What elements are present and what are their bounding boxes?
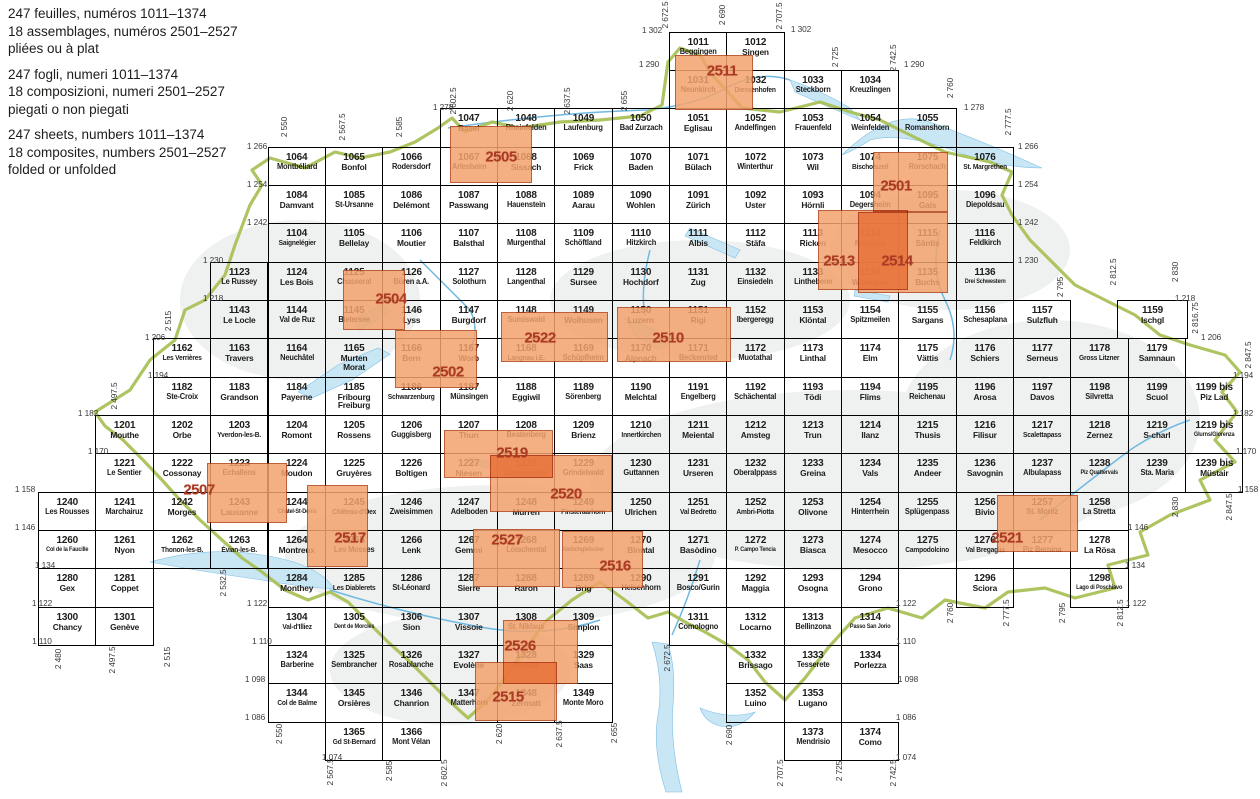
sheet-name: Meiental — [670, 431, 726, 440]
sheet-cell: 1300Chancy — [38, 607, 96, 646]
sheet-name: Gais — [899, 201, 955, 210]
sheet-name: Langnau i.E. — [500, 354, 552, 363]
sheet-name: Filisur — [957, 431, 1013, 440]
sheet-cell: 1274Mesocco — [841, 530, 899, 569]
sheet-number: 1260 — [39, 535, 95, 546]
sheet-cell: 1126Büren a.A. — [382, 262, 440, 301]
sheet-name: Schüpfheim — [556, 354, 610, 363]
sheet-cell: 1162Les Verrières — [153, 338, 211, 377]
sheet-name: Mont Vélan — [384, 738, 438, 747]
sheet-name: Bonfol — [326, 163, 382, 172]
sheet-name: Trun — [785, 431, 841, 440]
sheet-name: Binntal — [613, 546, 669, 555]
sheet-name: Lenk — [383, 546, 439, 555]
sheet-name: Klöntal — [785, 316, 841, 325]
sheet-name: Kreuzlingen — [843, 86, 897, 95]
sheet-name: Linthebene — [786, 278, 840, 287]
sheet-name: Simplon — [555, 623, 611, 632]
sheet-name: Chanrion — [383, 699, 439, 708]
sheet-name: Piz Bernina — [1015, 546, 1069, 555]
sheet-cell: 1311Comologno — [669, 607, 727, 646]
sheet-cell: 1267Gemmi — [440, 530, 498, 569]
sheet-cell: 1352Luino — [726, 683, 784, 722]
sheet-name: Sissach — [498, 163, 554, 172]
sheet-cell: 1195Reichenau — [898, 377, 956, 416]
sheet-cell: 1196Arosa — [956, 377, 1014, 416]
sheet-number: 1298 — [1071, 573, 1127, 584]
sheet-cell: 1033Steckborn — [784, 70, 842, 109]
sheet-name: Baden — [613, 163, 669, 172]
sheet-cell: 1089Aarau — [554, 185, 612, 224]
sheet-name: Saas — [555, 661, 611, 670]
sheet-cell: 1301Genève — [95, 607, 153, 646]
sheet-name: Winterthur — [728, 163, 782, 172]
sheet-cell: 1104Saignelégier — [268, 223, 326, 262]
legend-paragraph-french: 247 feuilles, numéros 1011–1374 18 assem… — [8, 5, 328, 58]
sheet-name: Rorschach — [900, 163, 954, 172]
sheet-cell: 1123Le Russey — [210, 262, 268, 301]
sheet-name: Grono — [842, 584, 898, 593]
sheet-cell: 1085St-Ursanne — [325, 185, 383, 224]
sheet-cell: 1344Col de Balme — [268, 683, 326, 722]
sheet-name: Sembrancher — [327, 661, 381, 670]
sheet-name: Lugano — [785, 699, 841, 708]
sheet-name: Gd St-Bernard — [328, 738, 380, 747]
sheet-name: Rodersdorf — [384, 163, 438, 172]
sheet-name: Aletschgletscher — [559, 546, 609, 555]
sheet-name: Orbe — [154, 431, 210, 440]
sheet-cell: 1166Bern — [382, 338, 440, 377]
sheet-cell: 1111Albis — [669, 223, 727, 262]
sheet-cell: 1132Einsiedeln — [726, 262, 784, 301]
sheet-name: Sulzfluh — [1014, 316, 1070, 325]
sheet-cell: 1219S-charl — [1128, 415, 1186, 454]
sheet-cell: 1205Rossens — [325, 415, 383, 454]
sheet-name: Campodolcino — [902, 546, 954, 555]
sheet-name: Savognin — [957, 469, 1013, 478]
sheet-cell: 1209Brienz — [554, 415, 612, 454]
sheet-cell: 1324Barberine — [268, 645, 326, 684]
sheet-cell: 1071Bülach — [669, 147, 727, 186]
sheet-name: Piz Lad — [1186, 393, 1242, 402]
sheet-cell: 1214Ilanz — [841, 415, 899, 454]
sheet-name: Gemmi — [441, 546, 497, 555]
sheet-name: Damvant — [269, 201, 325, 210]
sheet-cell: 1032Diessenhofen — [726, 70, 784, 109]
sheet-cell: 1159Ischgl — [1117, 300, 1188, 339]
sheet-cell: 1244Châtel-St-Denis — [268, 492, 326, 531]
sheet-cell: 1198Silvretta — [1070, 377, 1128, 416]
sheet-number: 1136 — [957, 267, 1013, 278]
sheet-name: St-Léonard — [384, 584, 438, 593]
sheet-cell: 1197Davos — [1013, 377, 1071, 416]
sheet-name: Coppet — [96, 584, 152, 593]
sheet-name: Morges — [154, 508, 210, 517]
sheet-cell: 1313Bellinzona — [784, 607, 842, 646]
sheet-cell: 1163Travers — [210, 338, 268, 377]
sheet-cell: 1131Zug — [669, 262, 727, 301]
sheet-name: Neunkirch — [671, 86, 725, 95]
sheet-number: 1238 — [1071, 458, 1127, 469]
sheet-cell: 1238Piz Quattervals — [1070, 453, 1128, 492]
sheet-cell: 1258La Stretta — [1070, 492, 1128, 531]
sheet-name: Château-d'Oex — [328, 508, 380, 517]
sheet-cell: 1235Andeer — [898, 453, 956, 492]
sheet-name: Davos — [1014, 393, 1070, 402]
sheet-cell: 1217Scalettapass — [1013, 415, 1071, 454]
sheet-name: Wil — [785, 163, 841, 172]
sheet-name: Chancy — [39, 623, 95, 632]
sheet-name: Feldkirch — [958, 239, 1012, 248]
sheet-name: Scalettapass — [1016, 431, 1068, 440]
sheet-cell: 1293Osogna — [784, 568, 842, 607]
sheet-name: Tesserete — [786, 661, 840, 670]
sheet-cell: 1047Basel — [440, 108, 498, 147]
sheet-name: Degersheim — [843, 201, 897, 210]
sheet-cell: 1245Château-d'Oex — [325, 492, 383, 531]
sheet-name: Adelboden — [442, 508, 496, 517]
sheet-name: Romanshorn — [900, 124, 954, 133]
sheet-name: Grindelwald — [556, 469, 610, 478]
sheet-name: Maggia — [727, 584, 783, 593]
sheet-name: Le Russey — [212, 278, 266, 287]
sheet-name: Ilanz — [842, 431, 898, 440]
sheet-name: Andelfingen — [728, 124, 782, 133]
sheet-cell: 1088Hauenstein — [497, 185, 555, 224]
sheet-name: Amsteg — [727, 431, 783, 440]
sheet-name: Reichenau — [900, 393, 954, 402]
sheet-name: Delémont — [383, 201, 439, 210]
sheet-cell: 1353Lugano — [784, 683, 842, 722]
sheet-name: Nesslau — [842, 239, 898, 248]
sheet-cell: 1048Rheinfelden — [497, 108, 555, 147]
sheet-name: Schöftland — [556, 239, 610, 248]
sheet-cell: 1287Sierre — [440, 568, 498, 607]
sheet-name: Elm — [842, 354, 898, 363]
sheet-cell: 1275Campodolcino — [898, 530, 956, 569]
sheet-name: Innertkirchen — [615, 431, 667, 440]
sheet-name: Romont — [269, 431, 325, 440]
sheet-cell: 1223Echallens — [210, 453, 268, 492]
sheet-name: Biasca — [785, 546, 841, 555]
sheet-cell: 1169Schüpfheim — [554, 338, 612, 377]
sheet-cell: 1199Scuol — [1128, 377, 1186, 416]
sheet-name: Balsthal — [441, 239, 497, 248]
sheet-cell: 1210Innertkirchen — [612, 415, 670, 454]
sheet-cell: 1268Lötschental — [497, 530, 555, 569]
sheet-name: Luzern — [613, 316, 669, 325]
sheet-name: Beckenried — [671, 354, 725, 363]
sheet-cell: 1227Niesen — [440, 453, 498, 492]
sheet-cell: 1129Sursee — [554, 262, 612, 301]
sheet-name: Marchairuz — [98, 508, 152, 517]
sheet-name: Brissago — [727, 661, 783, 670]
sheet-cell: 1084Damvant — [268, 185, 326, 224]
sheet-cell: 1188Eggiwil — [497, 377, 555, 416]
sheet-name: Zürich — [670, 201, 726, 210]
sheet-cell: 1130Hochdorf — [612, 262, 670, 301]
sheet-name: Brienz — [555, 431, 611, 440]
sheet-name: Hauenstein — [499, 201, 553, 210]
sheet-cell: 1307Vissoie — [440, 607, 498, 646]
sheet-cell: 1292Maggia — [726, 568, 784, 607]
sheet-name: Montreux — [269, 546, 325, 555]
sheet-name: Brig — [555, 584, 611, 593]
sheet-name: Cossonay — [154, 469, 210, 478]
sheet-name: Müstair — [1186, 469, 1242, 478]
sheet-cell: 1067Arlesheim — [440, 147, 498, 186]
sheet-cell: 1116Feldkirch — [956, 223, 1014, 262]
sheet-cell: 1373Mendrisio — [784, 722, 842, 761]
sheet-cell: 1146Lyss — [382, 300, 440, 339]
sheet-cell: 1051Eglisau — [669, 108, 727, 147]
sheet-cell: 1286St-Léonard — [382, 568, 440, 607]
sheet-cell: 1347Matterhorn — [440, 683, 498, 722]
sheet-name: Hochdorf — [613, 278, 669, 287]
sheet-name: S-charl — [1129, 431, 1185, 440]
sheet-cell: 1305Dent de Morcles — [325, 607, 383, 646]
sheet-cell: 1326Rosablanche — [382, 645, 440, 684]
legend-paragraph-italian: 247 fogli, numeri 1011–1374 18 composizi… — [8, 66, 328, 119]
sheet-name: Gross Litzner — [1074, 354, 1126, 363]
legend-line: 18 assemblages, numéros 2501–2527 — [8, 23, 328, 41]
sheet-name: Rosablanche — [384, 661, 438, 670]
sheet-name: Rheinfelden — [499, 124, 553, 133]
sheet-number: 1272 — [727, 535, 783, 546]
sheet-name: Zug — [670, 278, 726, 287]
sheet-cell: 1108Murgenthal — [497, 223, 555, 262]
sheet-cell: 1135Buchs — [898, 262, 956, 301]
sheet-name: Wolhusen — [555, 316, 611, 325]
sheet-cell: 1049Laufenburg — [554, 108, 612, 147]
sheet-cell: 1232Oberalppass — [726, 453, 784, 492]
sheet-name: Finsteraarhorn — [558, 508, 610, 517]
sheet-name: Orsières — [326, 699, 382, 708]
sheet-cell: 1164Neuchâtel — [268, 338, 326, 377]
sheet-cell: 1091Zürich — [669, 185, 727, 224]
sheet-name: Münsingen — [442, 393, 496, 402]
sheet-name: Serneus — [1014, 354, 1070, 363]
sheet-cell: 1165MurtenMorat — [325, 338, 383, 377]
sheet-name: Aarau — [555, 201, 611, 210]
sheet-cell: 1170Alpnach — [612, 338, 670, 377]
sheet-cell: 1203Yverdon-les-B. — [210, 415, 268, 454]
sheet-cell: 1265Les Mosses — [325, 530, 383, 569]
sheet-name: Sörenberg — [556, 393, 610, 402]
map-index-page: 1011Beggingen1012Singen1031Neunkirch1032… — [0, 0, 1260, 799]
sheet-cell: 1070Baden — [612, 147, 670, 186]
sheet-cell: 1086Delémont — [382, 185, 440, 224]
sheet-name: Bellelay — [326, 239, 382, 248]
sheet-number: 1269 — [555, 535, 611, 546]
sheet-cell: 1194Flims — [841, 377, 899, 416]
sheet-name: Niesen — [441, 469, 497, 478]
sheet-name: Lyss — [383, 316, 439, 325]
sheet-name: Singen — [727, 48, 783, 57]
sheet-cell: 1185FribourgFreiburg — [325, 377, 383, 416]
sheet-name: Comologno — [671, 623, 725, 632]
sheet-name: Bellinzona — [786, 623, 840, 632]
sheet-cell: 1309Simplon — [554, 607, 612, 646]
sheet-name: Evolène — [441, 661, 497, 670]
sheet-name: Sciora — [957, 584, 1013, 593]
sheet-cell: 1204Romont — [268, 415, 326, 454]
sheet-cell: 1333Tesserete — [784, 645, 842, 684]
sheet-name: Mesocco — [842, 546, 898, 555]
sheet-name: Mürren — [498, 508, 554, 517]
sheet-name: Säntis — [899, 239, 955, 248]
sheet-cell: 1207Thun — [440, 415, 498, 454]
sheet-name: Schwarzenburg — [385, 393, 437, 402]
sheet-name: Passwang — [441, 201, 497, 210]
sheet-name: Guggisberg — [384, 431, 438, 440]
sheet-name: Murgenthal — [499, 239, 553, 248]
sheet-name: P. Campo Tencia — [731, 546, 781, 555]
sheet-name: Moutier — [383, 239, 439, 248]
sheet-name: Büren a.A. — [384, 278, 438, 287]
sheet-name: Mendrisio — [786, 738, 840, 747]
sheet-name: Osogna — [785, 584, 841, 593]
sheet-name: Locarno — [727, 623, 783, 632]
sheet-name: Stäfa — [727, 239, 783, 248]
sheet-name: Saignelégier — [271, 239, 323, 248]
sheet-name: Uster — [727, 201, 783, 210]
sheet-cell: 1055Romanshorn — [898, 108, 956, 147]
sheet-cell: 1074Bischofszell — [841, 147, 899, 186]
sheet-cell: 1257St. Moritz — [1013, 492, 1071, 531]
sheet-cell: 1106Moutier — [382, 223, 440, 262]
sheet-cell: 1216Filisur — [956, 415, 1014, 454]
sheet-cell: 1294Grono — [841, 568, 899, 607]
sheet-name: Ulrichen — [613, 508, 669, 517]
sheet-name: Frick — [555, 163, 611, 172]
sheet-name: Le Sentier — [98, 469, 152, 478]
legend: 247 feuilles, numéros 1011–1374 18 assem… — [8, 5, 328, 187]
sheet-cell: 1296Sciora — [956, 568, 1014, 607]
sheet-name: Le Locle — [211, 316, 267, 325]
sheet-name: Frauenfeld — [786, 124, 840, 133]
sheet-cell: 1281Coppet — [95, 568, 153, 607]
sheet-cell: 1052Andelfingen — [726, 108, 784, 147]
sheet-name: Zernez — [1071, 431, 1127, 440]
sheet-name: Rossens — [326, 431, 382, 440]
sheet-name: Châtel-St-Denis — [272, 508, 322, 517]
sheet-name: Matterhorn — [442, 699, 496, 708]
sheet-cell: 1199 bisPiz Lad — [1185, 377, 1243, 416]
sheet-cell: 1243Lausanne — [210, 492, 268, 531]
sheet-cell: 1237Albulapass — [1013, 453, 1071, 492]
sheet-cell: 1190Melchtal — [612, 377, 670, 416]
sheet-name: Flims — [842, 393, 898, 402]
sheet-cell: 1031Neunkirch — [669, 70, 727, 109]
sheet-name: Thun — [441, 431, 497, 440]
sheet-cell: 1290Helsenhorn — [612, 568, 670, 607]
sheet-name: Bad Zurzach — [614, 124, 668, 133]
sheet-cell: 1277Piz Bernina — [1013, 530, 1071, 569]
sheet-name: Greina — [785, 469, 841, 478]
sheet-cell: 1167Worb — [440, 338, 498, 377]
sheet-name: Val-d'Illiez — [271, 623, 323, 632]
sheet-name: Zweisimmen — [384, 508, 438, 517]
sheet-cell: 1212Amsteg — [726, 415, 784, 454]
sheet-name: Diessenhofen — [730, 86, 782, 95]
sheet-cell: 1143Le Locle — [210, 300, 268, 339]
sheet-name: Boltigen — [383, 469, 439, 478]
sheet-name: Hörnli — [785, 201, 841, 210]
sheet-cell: 1264Montreux — [268, 530, 326, 569]
sheet-cell: 1201Mouthe — [95, 415, 153, 454]
sheet-cell: 1365Gd St-Bernard — [325, 722, 383, 761]
sheet-cell: 1263Évian-les-B. — [210, 530, 268, 569]
sheet-cell: 1261Nyon — [95, 530, 153, 569]
sheet-name: Steckborn — [786, 86, 840, 95]
sheet-cell: 1107Balsthal — [440, 223, 498, 262]
sheet-cell: 1254Hinterrhein — [841, 492, 899, 531]
sheet-cell: 1202Orbe — [153, 415, 211, 454]
sheet-cell: 1276Val Bregaglia — [956, 530, 1014, 569]
sheet-cell: 1174Elm — [841, 338, 899, 377]
sheet-cell: 1272P. Campo Tencia — [726, 530, 784, 569]
sheet-cell: 1148Sumiswald — [497, 300, 555, 339]
sheet-name: Thonon-les-B. — [156, 546, 208, 555]
sheet-name: St-Ursanne — [327, 201, 381, 210]
legend-paragraph-english: 247 sheets, numbers 1011–1374 18 composi… — [8, 126, 328, 179]
sheet-cell: 1133Linthebene — [784, 262, 842, 301]
sheet-name: Olivone — [785, 508, 841, 517]
sheet-cell: 1250Ulrichen — [612, 492, 670, 531]
sheet-name: St. Margrethen — [959, 163, 1011, 172]
sheet-name: Scuol — [1129, 393, 1185, 402]
sheet-name: Lötschental — [499, 546, 553, 555]
sheet-cell: 1157Sulzfluh — [1013, 300, 1071, 339]
sheet-cell: 1329Saas — [554, 645, 612, 684]
sheet-name: Sargans — [899, 316, 955, 325]
legend-line: 18 composites, numbers 2501–2527 — [8, 144, 328, 162]
sheet-cell: 1183Grandson — [210, 377, 268, 416]
sheet-name: Raron — [498, 584, 554, 593]
sheet-name: Helsenhorn — [614, 584, 668, 593]
sheet-cell: 1073Wil — [784, 147, 842, 186]
sheet-name: Passo San Jorio — [845, 623, 895, 632]
sheet-cell: 1134Walensee — [841, 262, 899, 301]
sheet-name: Val Bregaglia — [959, 546, 1011, 555]
sheet-name: Nyon — [96, 546, 152, 555]
sheet-cell: 1168Langnau i.E. — [497, 338, 555, 377]
sheet-cell: 1252Ambri-Piotta — [726, 492, 784, 531]
sheet-cell: 1226Boltigen — [382, 453, 440, 492]
sheet-cell: 1096Diepoldsau — [956, 185, 1014, 224]
sheet-name: Beatenberg — [499, 431, 553, 440]
sheet-name: Albis — [670, 239, 726, 248]
sheet-cell: 1233Greina — [784, 453, 842, 492]
sheet-cell: 1222Cossonay — [153, 453, 211, 492]
sheet-name: Les Diablerets — [328, 584, 380, 593]
sheet-name: Silvretta — [1073, 393, 1127, 402]
sheet-cell: 1171Beckenried — [669, 338, 727, 377]
sheet-cell: 1215Thusis — [898, 415, 956, 454]
sheet-number: 1314 — [842, 612, 898, 623]
sheet-cell: 1087Passwang — [440, 185, 498, 224]
sheet-cell: 1206Guggisberg — [382, 415, 440, 454]
sheet-name: MurtenMorat — [326, 354, 382, 371]
sheet-cell: 1068Sissach — [497, 147, 555, 186]
sheet-name: Yverdon-les-B. — [213, 431, 265, 440]
sheet-cell: 1234Vals — [841, 453, 899, 492]
sheet-cell: 1289Brig — [554, 568, 612, 607]
sheet-cell: 1211Meiental — [669, 415, 727, 454]
sheet-cell: 1208Beatenberg — [497, 415, 555, 454]
sheet-cell: 1256Bivio — [956, 492, 1014, 531]
